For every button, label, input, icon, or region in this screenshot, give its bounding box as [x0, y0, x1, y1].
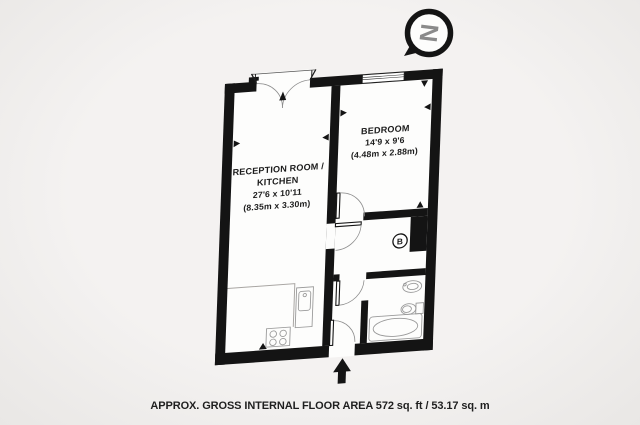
- floorplan-svg: B RECEPTION ROOM / KITCHEN 27'6 x 10'11 …: [0, 0, 640, 425]
- floor-area-caption: APPROX. GROSS INTERNAL FLOOR AREA 572 sq…: [0, 400, 640, 412]
- hall-doorway-opening: [326, 223, 336, 249]
- floorplan-page: B RECEPTION ROOM / KITCHEN 27'6 x 10'11 …: [0, 0, 640, 425]
- boiler-label: B: [397, 236, 404, 246]
- north-compass-icon: N: [404, 12, 451, 57]
- compass-letter: N: [414, 22, 444, 43]
- entrance-arrow-icon: [333, 358, 352, 384]
- floor-plan: B RECEPTION ROOM / KITCHEN 27'6 x 10'11 …: [214, 60, 443, 393]
